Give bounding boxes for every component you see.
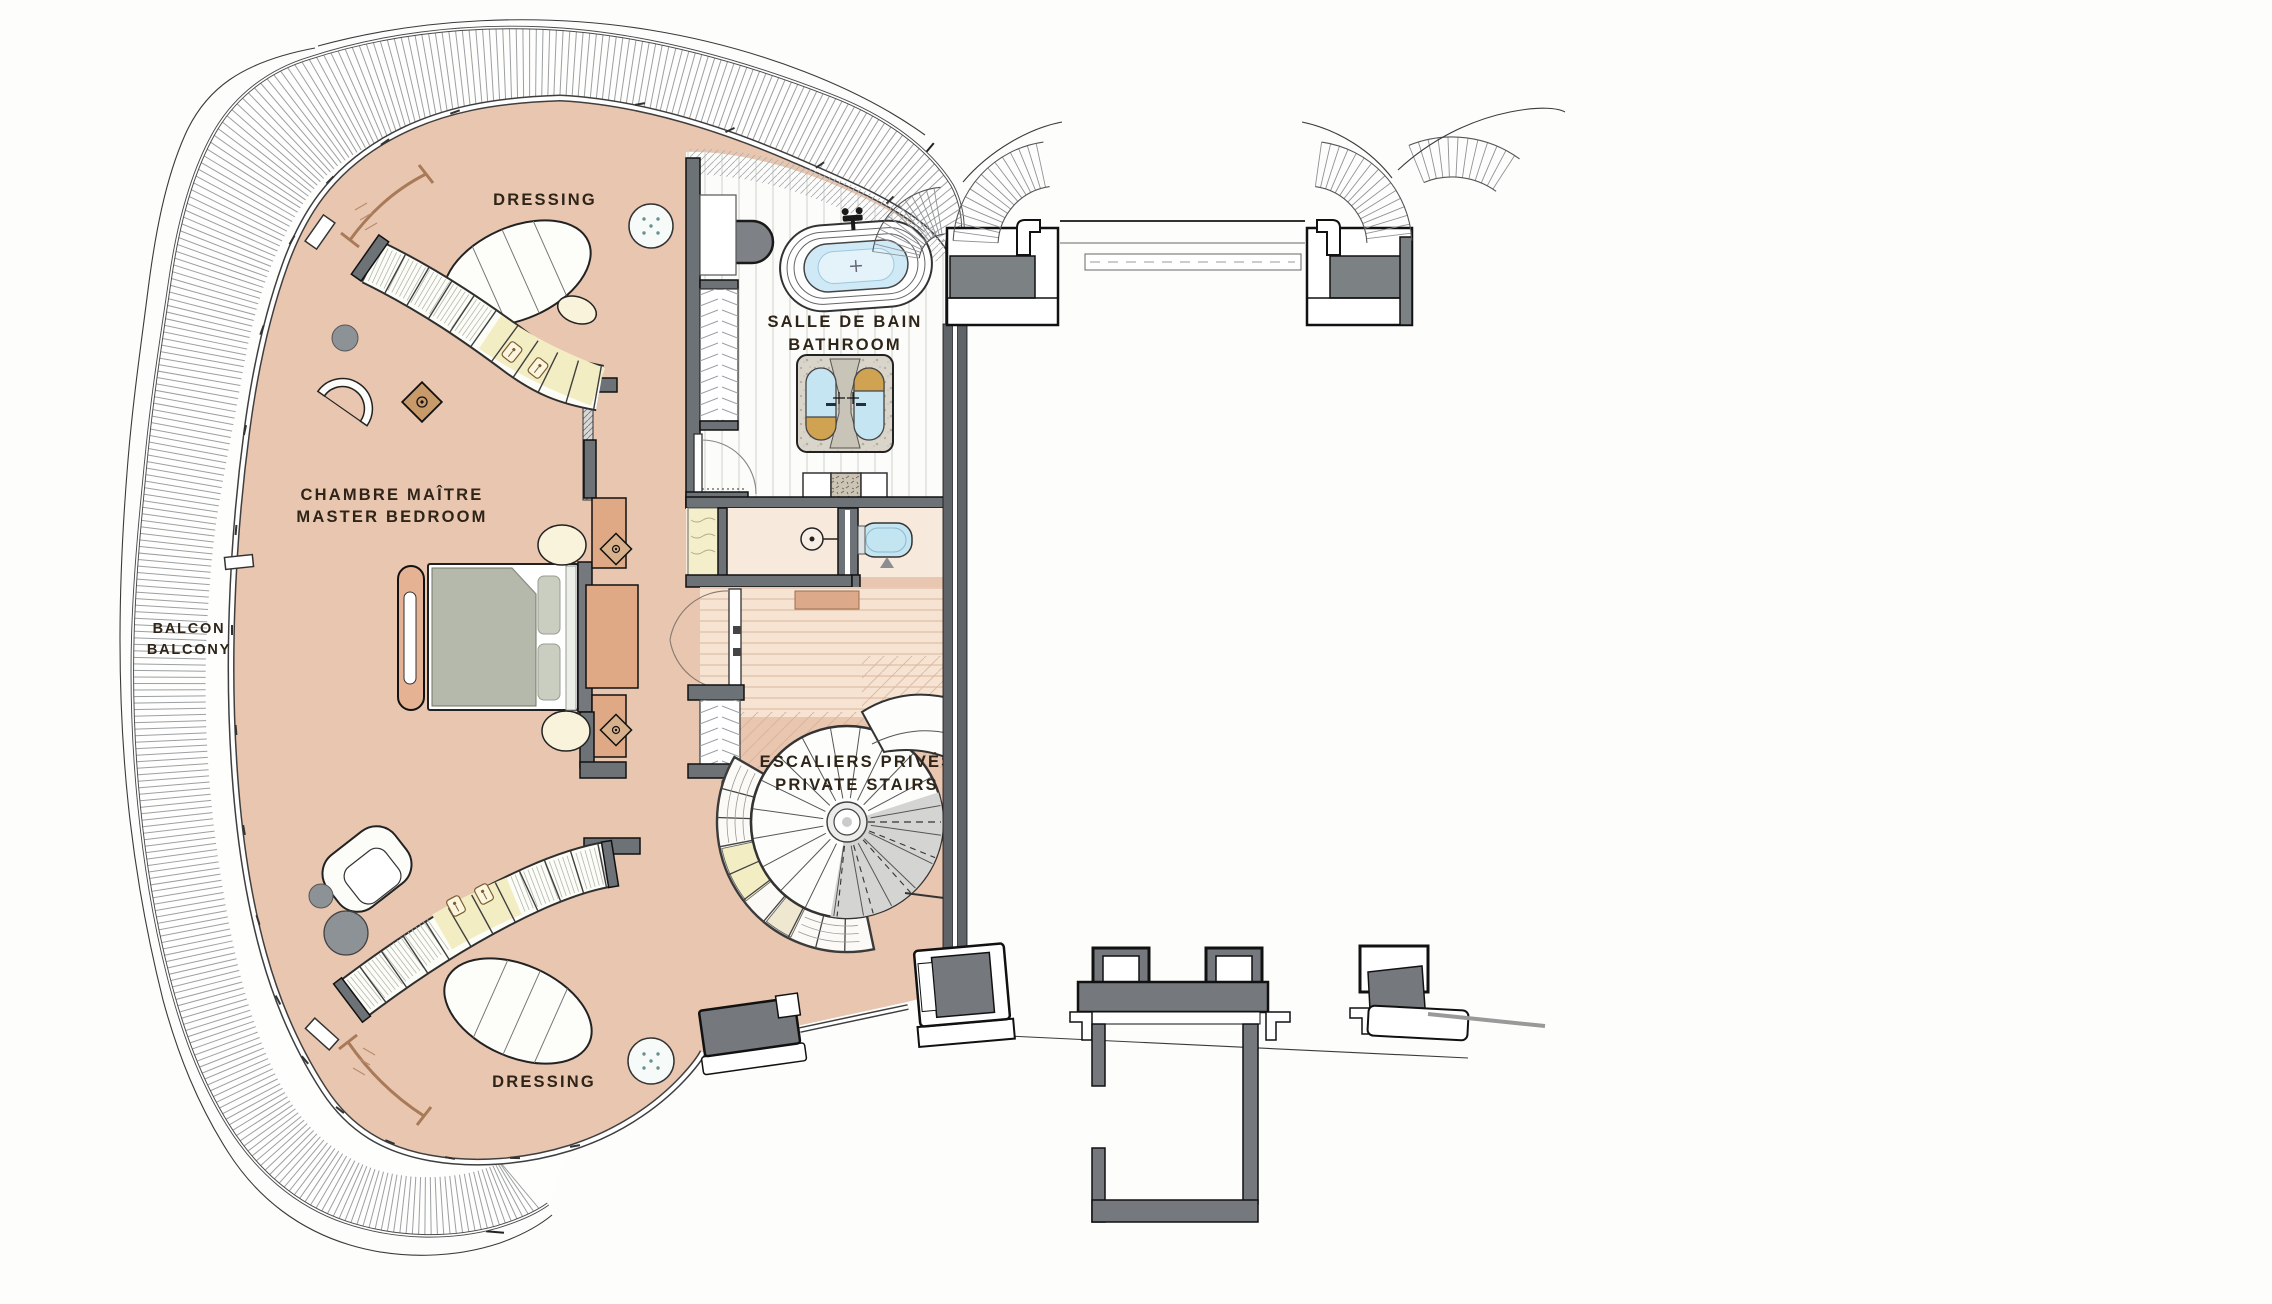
dressing-top-label: DRESSING [493,191,597,209]
corridor-party-wall [943,242,967,956]
round-pouf [629,204,673,248]
adjacent-structure-shaft [1070,948,1290,1222]
bed-pillow [538,576,560,634]
bedroom-label-fr: CHAMBRE MAÎTRE [301,485,484,504]
gray-stool [332,325,358,351]
round-pouf [628,1038,674,1084]
toilet [858,523,912,557]
roof-arcs [963,108,1565,182]
nightstand [538,525,586,565]
balcony-label-fr: BALCON [153,621,226,637]
balcony-label-en: BALCONY [147,642,231,658]
gray-stool [309,884,333,908]
bed [398,564,578,710]
stairs-label-fr: ESCALIERS PRIVÉS [760,752,955,771]
bathroom-label-en: BATHROOM [788,336,902,354]
bed-duvet [432,568,536,706]
hall-mat [795,591,859,609]
floor-plan-drawing: SALLE DE BAIN BATHROOM [0,0,2272,1304]
stairs-label-en: PRIVATE STAIRS [775,776,939,794]
gray-stool [324,911,368,955]
bed-pillow [538,644,560,700]
structural-pier-right [1307,220,1412,325]
bathroom-label-fr: SALLE DE BAIN [767,313,922,331]
corridor-bridge [1060,221,1305,270]
adjacent-structure-seat [1350,946,1545,1041]
dressing-bottom-label: DRESSING [492,1073,596,1091]
vanity-double-sink [797,355,893,452]
bottom-pier [911,943,1015,1047]
bedroom-label-en: MASTER BEDROOM [296,508,487,526]
bath-niche [803,473,887,499]
wc-closet [688,508,718,576]
structural-pier-left [947,220,1058,325]
floor-plan-page: SALLE DE BAIN BATHROOM [0,0,2272,1304]
nightstand [542,711,590,751]
